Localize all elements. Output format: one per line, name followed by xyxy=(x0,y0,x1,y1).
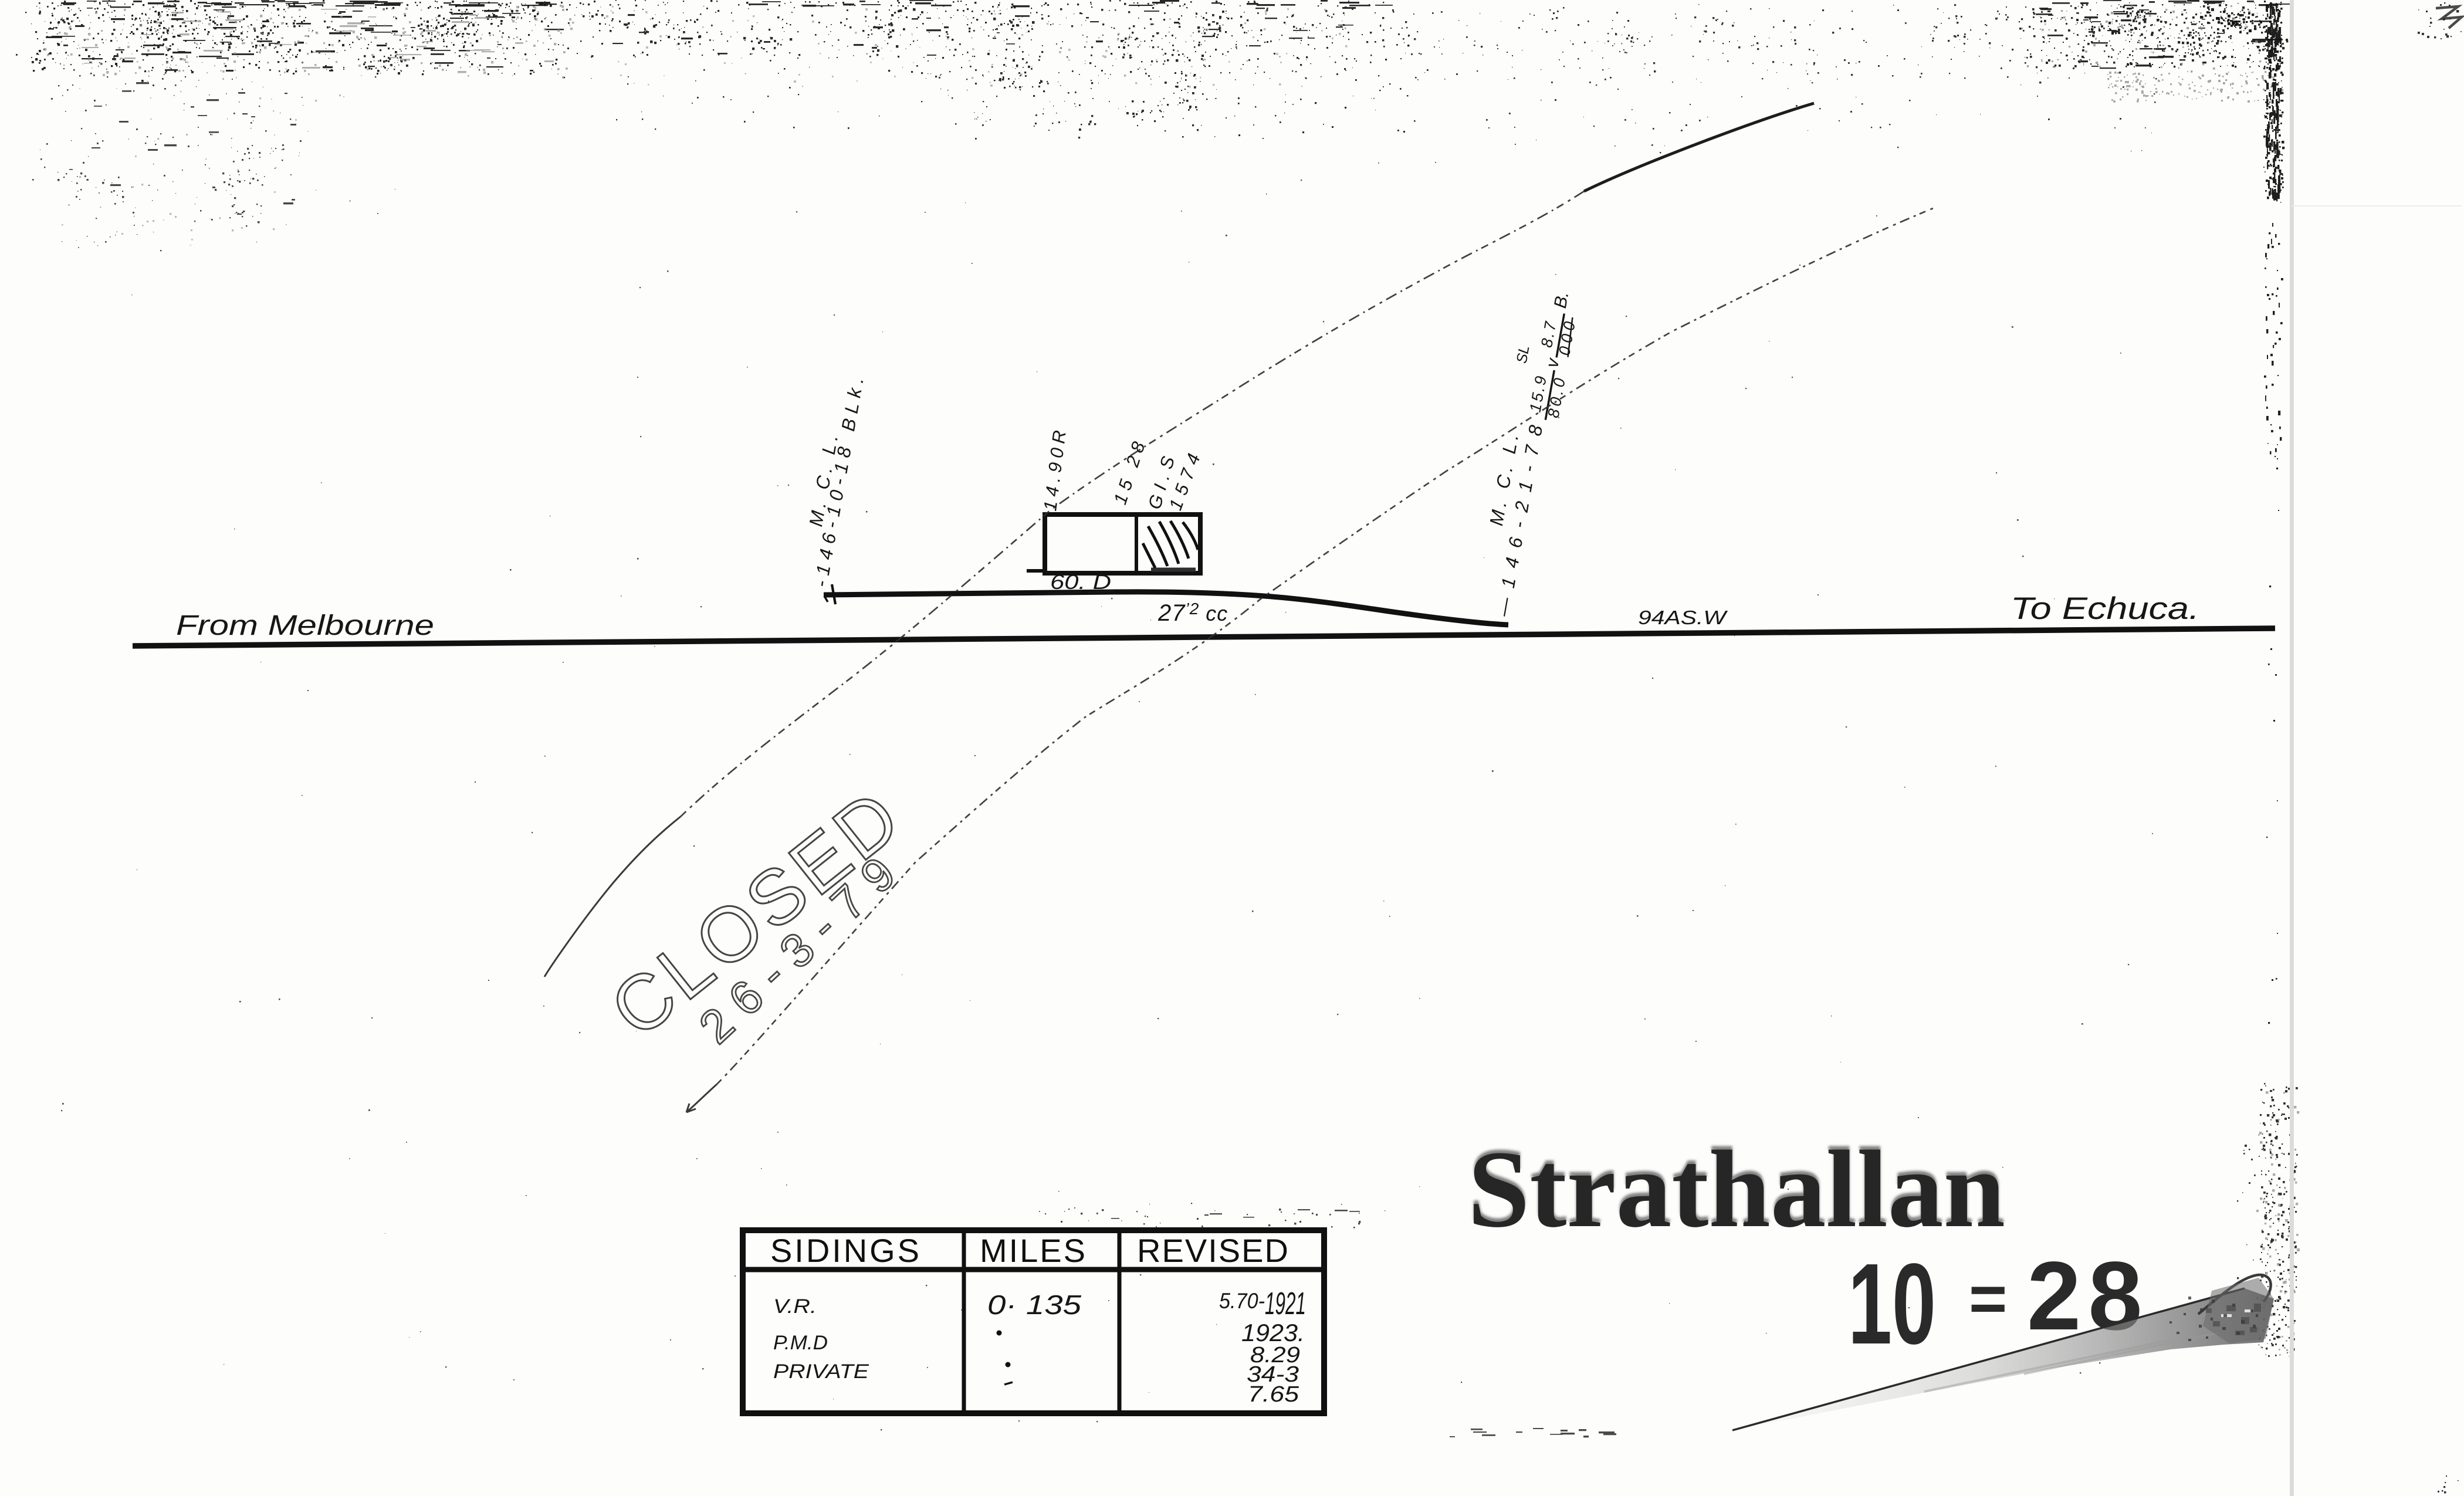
svg-text:PRIVATE: PRIVATE xyxy=(773,1360,869,1383)
svg-text:0· 135: 0· 135 xyxy=(987,1289,1082,1320)
svg-text:SL: SL xyxy=(1514,344,1533,365)
svg-text:REVISED: REVISED xyxy=(1137,1232,1288,1269)
svg-text:1923.: 1923. xyxy=(1241,1319,1305,1346)
svg-text:5.70-: 5.70- xyxy=(1219,1289,1265,1313)
svg-text:V.R.: V.R. xyxy=(773,1295,817,1318)
svg-text:MILES: MILES xyxy=(980,1232,1085,1269)
svg-text:=: = xyxy=(1969,1262,2007,1335)
svg-text:10: 10 xyxy=(1848,1240,1936,1368)
svg-text:From Melbourne: From Melbourne xyxy=(176,610,434,641)
svg-text:Strathallan: Strathallan xyxy=(1468,1128,2005,1250)
svg-text:7.65: 7.65 xyxy=(1248,1382,1299,1407)
svg-text:To Echuca.: To Echuca. xyxy=(2011,591,2199,626)
svg-text:P.M.D: P.M.D xyxy=(773,1332,828,1354)
svg-text:1921: 1921 xyxy=(1265,1286,1306,1321)
svg-text:94AS.W: 94AS.W xyxy=(1638,607,1728,628)
svg-text:B.: B. xyxy=(1551,290,1572,310)
svg-text:60. D: 60. D xyxy=(1050,571,1111,594)
